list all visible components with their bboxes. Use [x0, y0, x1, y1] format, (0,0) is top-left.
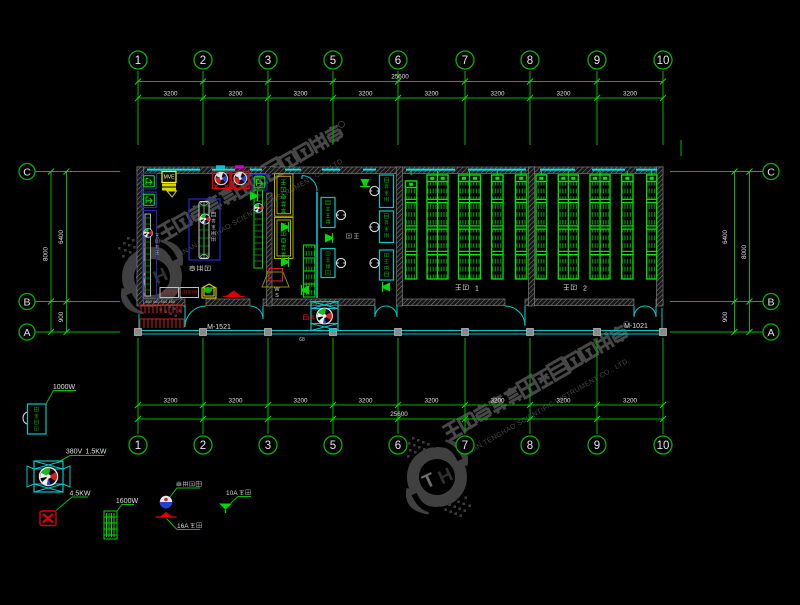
svg-text:6: 6	[395, 440, 401, 452]
svg-text:460 460 460 460: 460 460 460 460	[145, 299, 176, 304]
svg-text:1: 1	[135, 440, 141, 452]
svg-text:900: 900	[58, 311, 65, 322]
svg-text:8000: 8000	[43, 247, 50, 262]
svg-text:1: 1	[475, 286, 479, 293]
svg-text:4.5KW: 4.5KW	[69, 491, 90, 498]
svg-text:8: 8	[527, 440, 533, 452]
svg-text:25600: 25600	[391, 74, 409, 81]
svg-text:900: 900	[722, 311, 729, 322]
svg-text:8000: 8000	[741, 245, 748, 260]
svg-text:B: B	[23, 296, 30, 308]
svg-text:380V: 380V	[66, 449, 83, 456]
svg-text:1600W: 1600W	[116, 498, 139, 505]
svg-text:5: 5	[330, 440, 336, 452]
svg-text:8: 8	[527, 55, 533, 67]
svg-text:3200: 3200	[490, 398, 505, 405]
svg-text:2: 2	[583, 286, 587, 293]
svg-text:6400: 6400	[58, 230, 65, 245]
svg-text:68: 68	[299, 337, 305, 343]
svg-text:5: 5	[330, 55, 336, 67]
svg-text:7: 7	[462, 440, 468, 452]
svg-text:M-1021: M-1021	[624, 323, 648, 330]
svg-text:3: 3	[265, 55, 271, 67]
svg-text:3200: 3200	[556, 91, 571, 98]
svg-text:1000W: 1000W	[53, 384, 76, 391]
svg-text:B: B	[767, 296, 774, 308]
svg-text:9: 9	[594, 440, 600, 452]
svg-text:7: 7	[462, 55, 468, 67]
svg-text:3200: 3200	[623, 91, 638, 98]
svg-text:3: 3	[265, 440, 271, 452]
svg-text:3200: 3200	[163, 91, 178, 98]
svg-text:2: 2	[200, 440, 206, 452]
svg-text:3200: 3200	[623, 398, 638, 405]
svg-text:C: C	[23, 166, 31, 178]
svg-text:10: 10	[657, 440, 670, 452]
svg-text:MVE: MVE	[164, 175, 176, 181]
svg-text:1: 1	[135, 55, 141, 67]
svg-text:10A: 10A	[226, 490, 238, 497]
svg-text:3200: 3200	[358, 91, 373, 98]
svg-text:S: S	[275, 293, 279, 299]
svg-text:3200: 3200	[424, 91, 439, 98]
svg-text:3200: 3200	[424, 398, 439, 405]
svg-text:2: 2	[200, 55, 206, 67]
svg-text:3200: 3200	[228, 398, 243, 405]
svg-text:3200: 3200	[293, 91, 308, 98]
svg-text:10: 10	[657, 55, 670, 67]
svg-text:3200: 3200	[358, 398, 373, 405]
svg-text:A: A	[767, 327, 774, 339]
svg-text:A: A	[23, 327, 30, 339]
svg-text:6400: 6400	[722, 230, 729, 245]
svg-text:3200: 3200	[293, 398, 308, 405]
svg-text:C: C	[767, 166, 775, 178]
svg-text:M-1521: M-1521	[207, 324, 231, 331]
svg-text:3200: 3200	[228, 91, 243, 98]
svg-text:25600: 25600	[390, 411, 408, 418]
svg-text:6: 6	[395, 55, 401, 67]
svg-text:9: 9	[594, 55, 600, 67]
svg-text:3200: 3200	[490, 91, 505, 98]
svg-text:1.5KW: 1.5KW	[85, 449, 106, 456]
svg-text:3200: 3200	[556, 398, 571, 405]
svg-text:16A: 16A	[177, 523, 189, 530]
svg-text:3200: 3200	[163, 398, 178, 405]
